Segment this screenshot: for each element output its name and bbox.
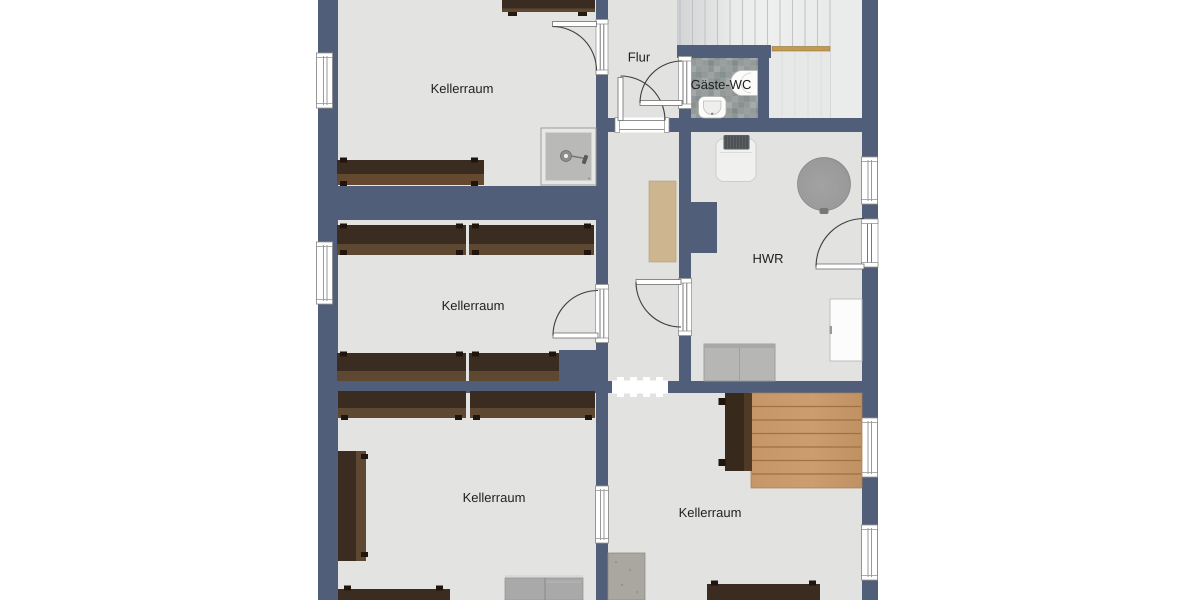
svg-text:Gäste-WC: Gäste-WC xyxy=(691,77,752,92)
svg-text:Kellerraum: Kellerraum xyxy=(679,505,742,520)
svg-text:Kellerraum: Kellerraum xyxy=(463,490,526,505)
svg-text:HWR: HWR xyxy=(752,251,783,266)
svg-text:Kellerraum: Kellerraum xyxy=(431,81,494,96)
svg-text:Kellerraum: Kellerraum xyxy=(442,298,505,313)
svg-text:Flur: Flur xyxy=(628,50,651,65)
